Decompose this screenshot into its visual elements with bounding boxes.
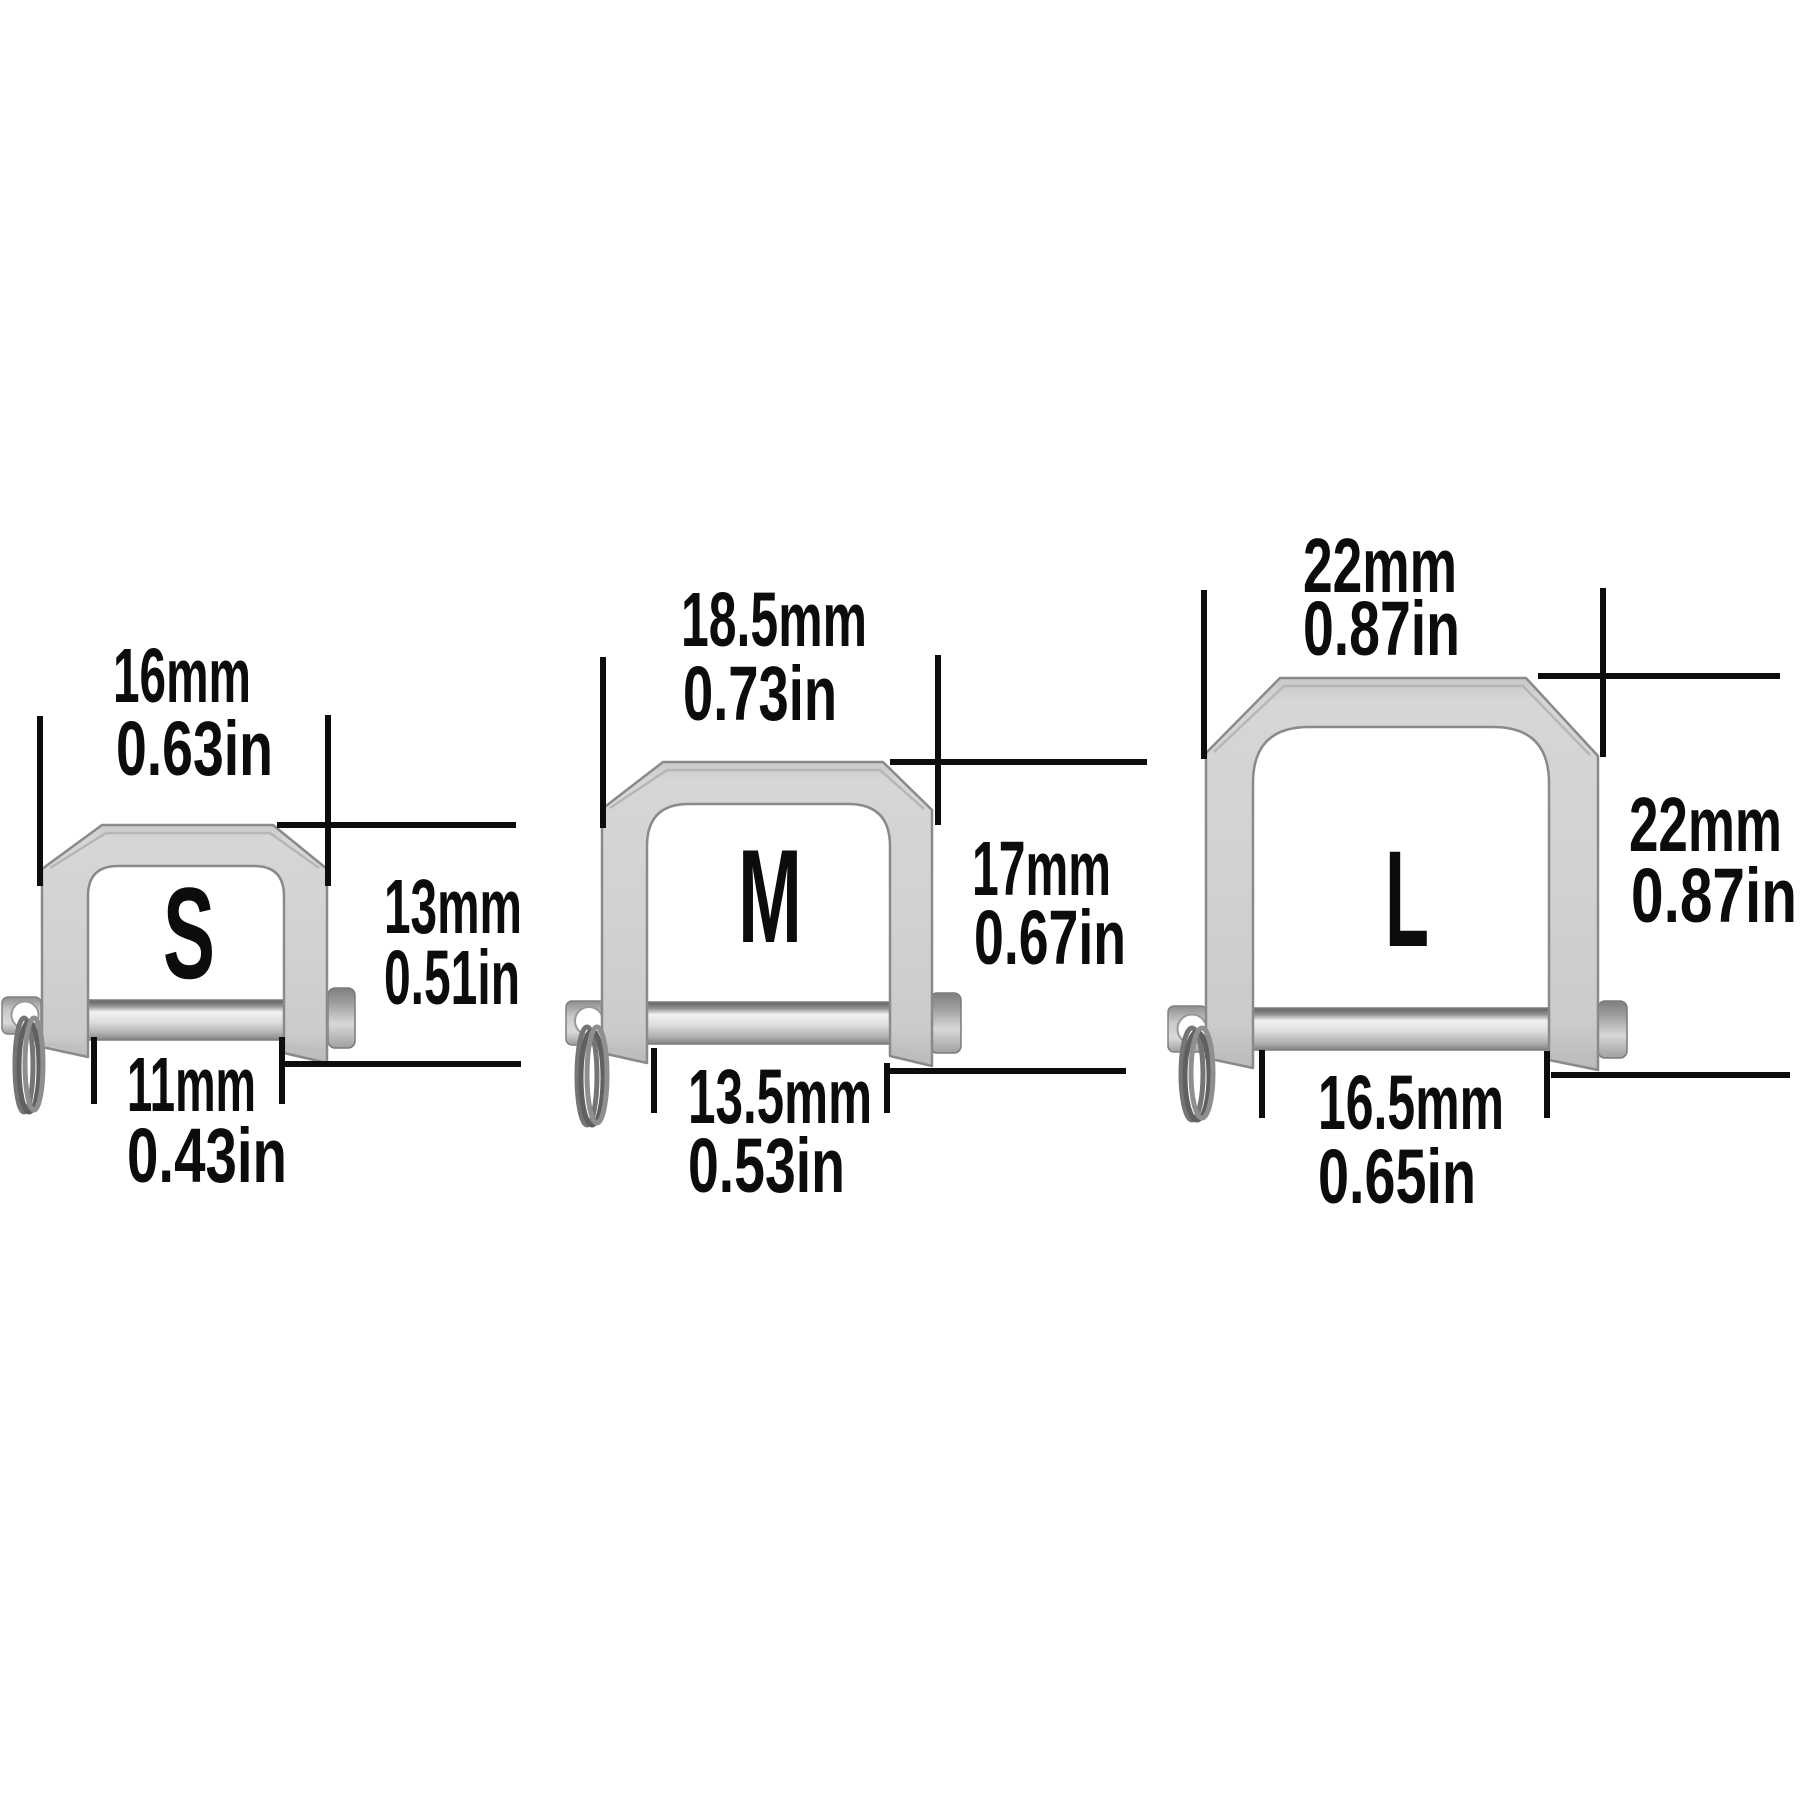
- svg-text:0.67in: 0.67in: [974, 895, 1126, 981]
- svg-text:M: M: [738, 823, 802, 971]
- svg-text:0.65in: 0.65in: [1318, 1134, 1476, 1220]
- svg-text:S: S: [163, 860, 215, 1006]
- svg-text:0.87in: 0.87in: [1303, 586, 1460, 672]
- svg-text:0.51in: 0.51in: [384, 935, 520, 1021]
- svg-text:0.63in: 0.63in: [116, 706, 273, 792]
- svg-text:0.43in: 0.43in: [127, 1113, 287, 1199]
- svg-text:0.73in: 0.73in: [683, 651, 837, 737]
- svg-text:0.87in: 0.87in: [1631, 853, 1797, 939]
- svg-text:L: L: [1385, 823, 1429, 976]
- svg-text:0.53in: 0.53in: [688, 1123, 845, 1209]
